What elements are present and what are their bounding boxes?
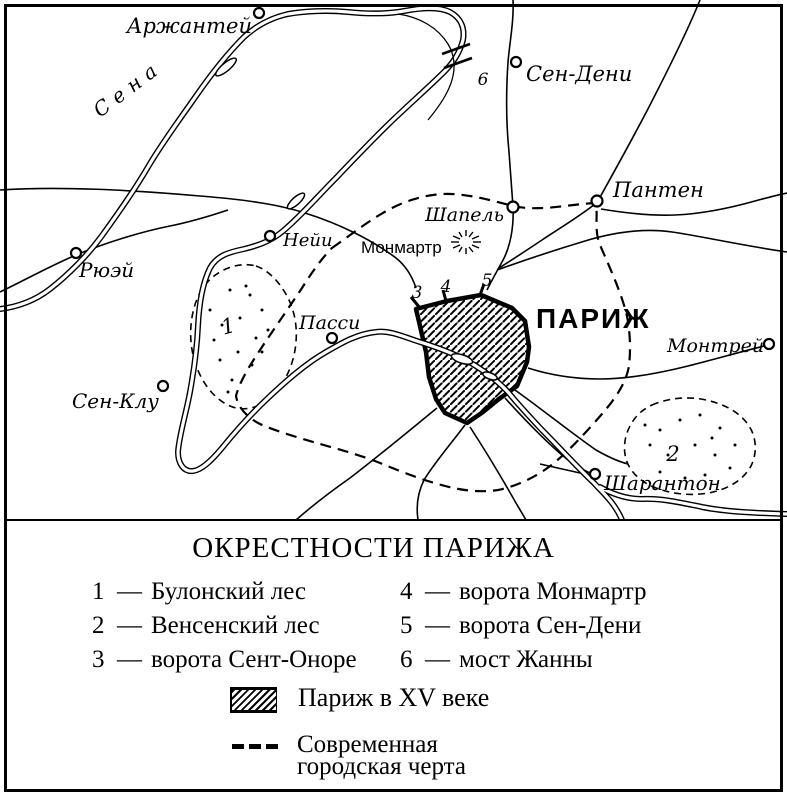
map-label-arzhantey: Аржантей	[125, 14, 252, 38]
legend-item-1-number: 1	[92, 578, 108, 606]
road-southeast-c	[470, 427, 526, 519]
map-label-ryuey: Рюэй	[78, 258, 134, 282]
legend-item-2-number: 2	[92, 612, 108, 640]
map-number-5: 5	[482, 271, 493, 291]
map-label-neyi: Нейи	[282, 230, 333, 251]
legend-item-1: 1—Булонский лес	[92, 578, 306, 606]
map-number-1: 1	[219, 313, 238, 340]
road-south-b	[417, 425, 465, 519]
legend-item-5-label: ворота Сен-Дени	[459, 612, 641, 639]
town-marker-arzhantey	[254, 8, 264, 18]
montmartre-hill-icon	[451, 230, 481, 254]
town-marker-sen-klu	[158, 381, 168, 391]
town-marker-sen-deni	[511, 57, 521, 67]
town-marker-montrey	[764, 339, 774, 349]
legend-dash: —	[117, 612, 142, 639]
map-number-2: 2	[665, 442, 679, 466]
legend-item-1-label: Булонский лес	[151, 578, 306, 605]
legend-dash: —	[425, 646, 450, 673]
map-number-6: 6	[478, 70, 489, 90]
road-saint-denis	[487, 0, 513, 290]
legend-dash: —	[425, 612, 450, 639]
town-marker-passi	[327, 333, 337, 343]
road-east-1	[497, 230, 787, 270]
map-label-sharanton: Шарантон	[603, 471, 721, 495]
map-label-montrey: Монтрей	[666, 335, 764, 357]
map-label-shapel: Шапель	[424, 204, 504, 226]
map-number-4: 4	[440, 277, 452, 297]
paris-hexagon	[411, 284, 529, 423]
map-label-monmartr: Монмартр	[361, 238, 442, 257]
map-figure: Аржантей Сен-Дени Пантен Шапель Нейи Рюэ…	[0, 0, 787, 796]
paris-hatch-swatch	[230, 687, 277, 713]
boundary-label-line2: городская черта	[297, 753, 466, 781]
legend-item-2-label: Венсенский лес	[151, 612, 320, 639]
legend-title: ОКРЕСТНОСТИ ПАРИЖА	[6, 532, 741, 565]
legend-dash: —	[425, 578, 450, 605]
town-marker-neyi	[265, 231, 275, 241]
map-number-3: 3	[412, 283, 423, 303]
town-marker-panten	[592, 196, 603, 207]
map-label-panten: Пантен	[612, 178, 704, 202]
forest-boulogne-dots	[209, 285, 270, 394]
paris-swatch-label: Париж в XV веке	[298, 683, 489, 713]
legend-item-3-label: ворота Сент-Оноре	[151, 646, 357, 673]
legend-item-5: 5—ворота Сен-Дени	[400, 612, 641, 640]
map-label-passi: Пасси	[298, 312, 360, 334]
road-southwest-a	[296, 408, 437, 519]
legend-item-6-number: 6	[400, 646, 416, 674]
legend-item-4-number: 4	[400, 578, 416, 606]
legend-dash: —	[117, 578, 142, 605]
legend-item-2: 2—Венсенский лес	[92, 612, 320, 640]
forest-vincennes-dots	[644, 414, 737, 480]
town-marker-sharanton	[590, 469, 600, 479]
map-canvas: Аржантей Сен-Дени Пантен Шапель Нейи Рюэ…	[0, 0, 787, 519]
road-pantin-north	[599, 0, 700, 199]
legend-panel: ОКРЕСТНОСТИ ПАРИЖА 1—Булонский лес 2—Вен…	[6, 519, 781, 790]
legend-item-3-number: 3	[92, 646, 108, 674]
legend-item-4: 4—ворота Монмартр	[400, 578, 647, 606]
legend-item-6-label: мост Жанны	[459, 646, 593, 673]
map-label-sen-deni: Сен-Дени	[526, 62, 632, 86]
legend-item-6: 6—мост Жанны	[400, 646, 593, 674]
town-marker-ryuey	[71, 248, 81, 258]
map-label-sen-klu: Сен-Клу	[72, 389, 159, 413]
boundary-dash-swatch	[232, 744, 278, 749]
legend-item-3: 3—ворота Сент-Оноре	[92, 646, 357, 674]
legend-dash: —	[117, 646, 142, 673]
map-label-parizh: ПАРИЖ	[536, 303, 650, 334]
legend-item-5-number: 5	[400, 612, 416, 640]
river-label-sena: Сена	[89, 55, 168, 122]
legend-item-4-label: ворота Монмартр	[459, 578, 647, 605]
town-marker-shapel	[508, 202, 519, 213]
